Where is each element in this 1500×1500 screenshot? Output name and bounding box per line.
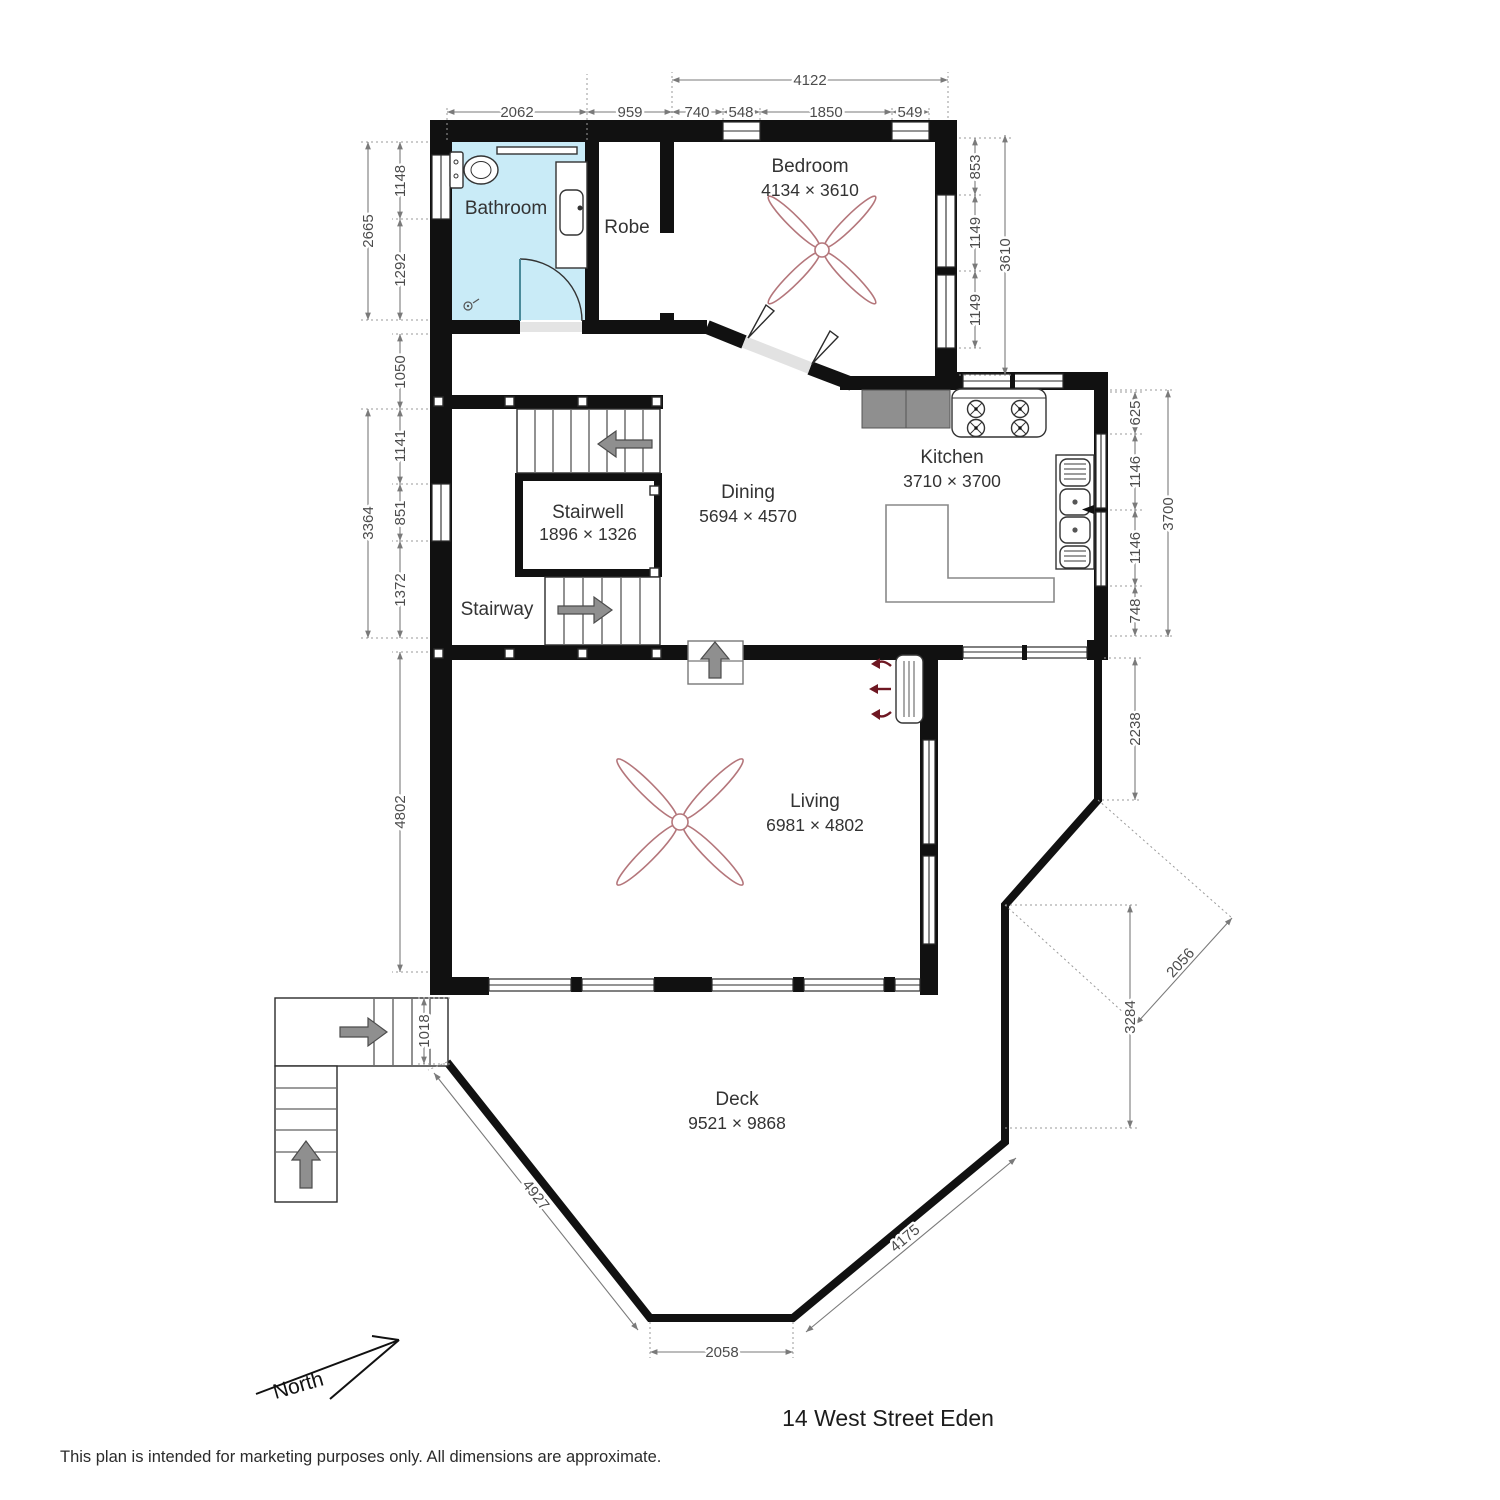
window-bedroom-right-2	[937, 275, 955, 348]
dim-label: 1149	[967, 294, 984, 326]
double-door-leaf-1	[748, 305, 774, 338]
window-bedroom-top-2	[892, 122, 929, 140]
stove-burner	[968, 420, 985, 437]
wall-bedroom-south	[840, 376, 935, 390]
window-living-right-1	[923, 740, 935, 844]
window-living-bottom-2	[582, 979, 654, 991]
stove-icon	[952, 389, 1046, 437]
vanity-icon	[556, 162, 587, 268]
living-ceiling-fan-icon	[612, 754, 747, 889]
window-kitchen-right-2	[1096, 512, 1106, 586]
window-bedroom-top-1	[723, 122, 760, 140]
window-bedroom-right-1	[937, 195, 955, 267]
wall-post	[650, 568, 659, 577]
wall-post	[434, 397, 443, 406]
window-kitchen-bottom	[963, 645, 1087, 660]
floor-plan-page: 4122 2062 959 740 548 1850 549 2665 1148…	[0, 0, 1500, 1500]
dim-label: 748	[1127, 598, 1144, 623]
stove-burner	[1012, 401, 1029, 418]
kitchen-size: 3710 × 3700	[903, 471, 1001, 491]
wall-post	[578, 649, 587, 658]
sink-icon	[1056, 455, 1094, 569]
dim-label: 1148	[392, 165, 409, 197]
dim-label: 2665	[360, 214, 377, 247]
dim-label: 548	[728, 104, 753, 121]
dim-label: 853	[967, 154, 984, 179]
wall-living-bottom-1	[430, 977, 489, 995]
dim-label: 1850	[809, 104, 842, 121]
dim-label: 1018	[416, 1014, 433, 1047]
dim-label: 1292	[392, 253, 409, 286]
dining-size: 5694 × 4570	[699, 506, 797, 526]
page-title: 14 West Street Eden	[782, 1405, 994, 1431]
wall-dining-top	[430, 395, 663, 409]
living-label: Living	[790, 791, 840, 812]
bathroom-door-threshold	[520, 322, 582, 332]
dim-label: 1372	[392, 573, 409, 606]
entry-door-marker	[688, 641, 743, 684]
deck-size: 9521 × 9868	[688, 1113, 786, 1133]
double-door-threshold	[744, 342, 810, 368]
dim-label: 3284	[1122, 1000, 1139, 1033]
dim-label: 3364	[360, 506, 377, 539]
kitchen-island-bench	[886, 505, 1054, 602]
double-door-leaf-2	[812, 331, 838, 364]
wall-living-bottom-5	[884, 977, 895, 992]
dim-label: 625	[1127, 400, 1144, 425]
window-living-bottom-4	[804, 979, 884, 991]
window-living-right-2	[923, 856, 935, 944]
dim-label: 549	[897, 104, 922, 121]
wall-living-bottom-3	[654, 977, 712, 992]
dim-label: 3610	[997, 238, 1014, 271]
wall-diagonal-upper	[707, 327, 744, 342]
stairwell-label: Stairwell	[552, 502, 624, 523]
dim-label: 3700	[1160, 497, 1177, 530]
dim-label: 1050	[392, 355, 409, 388]
stairwell-size: 1896 × 1326	[539, 524, 637, 544]
heater-airflow-arrows	[869, 658, 891, 720]
wall-post	[652, 649, 661, 658]
wall-living-bottom-4	[793, 977, 804, 992]
dim-label: 1149	[967, 217, 984, 249]
window-stair-left	[432, 484, 450, 541]
stove-burner	[1012, 420, 1029, 437]
kitchen-counter-2	[906, 390, 950, 428]
dim-label: 2238	[1127, 712, 1144, 745]
dim-label: 740	[684, 104, 709, 121]
window-kitchen-right-1	[1096, 434, 1106, 508]
dim-label: 1141	[392, 430, 409, 462]
dim-label: 1146	[1127, 456, 1144, 488]
window-kitchen-top	[963, 372, 1063, 390]
dim-label: 1146	[1127, 532, 1144, 564]
north-arrow-icon: North	[256, 1336, 399, 1404]
window-bathroom-left	[432, 155, 450, 219]
wall-living-bottom-2	[571, 977, 582, 992]
stairway-label: Stairway	[461, 599, 534, 620]
window-living-bottom-1	[489, 979, 571, 991]
dim-label: 4122	[793, 72, 826, 89]
towel-rail-icon	[497, 147, 577, 154]
dining-label: Dining	[721, 482, 775, 503]
wall-left	[430, 120, 452, 995]
dim-label: 851	[392, 500, 409, 525]
wall-post	[652, 397, 661, 406]
deck-label: Deck	[715, 1089, 759, 1110]
stove-burner	[968, 401, 985, 418]
kitchen-label: Kitchen	[920, 447, 983, 468]
window-living-bottom-3	[712, 979, 793, 991]
window-living-bottom-5	[895, 979, 920, 991]
wall-top	[430, 120, 957, 142]
wall-post	[505, 649, 514, 658]
north-label: North	[270, 1368, 326, 1404]
dim-label: 4175	[887, 1221, 923, 1255]
wall-post	[505, 397, 514, 406]
wall-post	[578, 397, 587, 406]
dim-label: 2058	[705, 1344, 738, 1361]
bedroom-size: 4134 × 3610	[761, 180, 859, 200]
heater-icon	[869, 655, 923, 723]
dim-label: 2062	[500, 104, 533, 121]
dim-label: 959	[617, 104, 642, 121]
bathroom-label: Bathroom	[465, 198, 547, 219]
living-size: 6981 × 4802	[766, 815, 864, 835]
dim-label: 4802	[392, 795, 409, 828]
wall-robe-right-upper	[660, 142, 674, 233]
floor-plan-canvas: 4122 2062 959 740 548 1850 549 2665 1148…	[0, 0, 1500, 1500]
bedroom-label: Bedroom	[771, 156, 848, 177]
wall-post	[650, 486, 659, 495]
robe-label: Robe	[604, 217, 649, 238]
wall-post	[434, 649, 443, 658]
kitchen-counter-1	[862, 390, 906, 428]
kitchen-fixtures	[862, 389, 1094, 602]
disclaimer: This plan is intended for marketing purp…	[60, 1448, 661, 1466]
dim-label: 2056	[1163, 945, 1198, 981]
bedroom-ceiling-fan-icon	[764, 192, 879, 307]
